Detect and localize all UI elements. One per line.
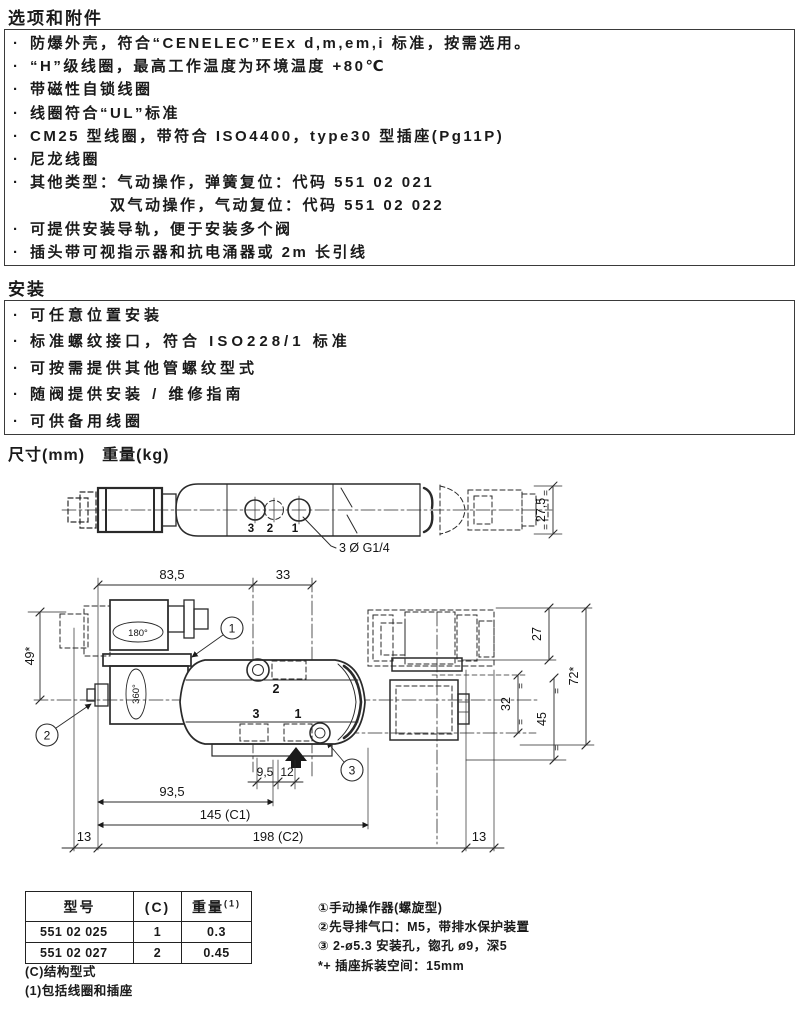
bullet: · bbox=[13, 356, 30, 382]
bullet: · bbox=[13, 409, 30, 435]
port-label-2: 2 bbox=[267, 523, 273, 535]
datasheet-page: 选项和附件 ·防爆外壳，符合“CENELEC”EEx d,m,em,i 标准，按… bbox=[0, 0, 800, 1015]
bullet: · bbox=[13, 125, 30, 148]
list-item: ·“H”级线圈，最高工作温度为环境温度 +80℃ bbox=[13, 55, 786, 78]
side-view: 83,5 33 49* bbox=[23, 567, 594, 852]
header-weight: 重量(1) bbox=[182, 892, 252, 922]
list-item: ·CM25 型线圈，带符合 ISO4400，type30 型插座(Pg11P) bbox=[13, 125, 786, 148]
list-item-text: 可任意位置安装 bbox=[30, 303, 163, 329]
list-item: ·可任意位置安装 bbox=[13, 303, 786, 329]
callout-1: 1 bbox=[192, 617, 243, 657]
body-port-3: 3 bbox=[253, 707, 260, 721]
bullet: · bbox=[13, 102, 30, 125]
svg-text:=: = bbox=[541, 490, 552, 496]
list-item: ·可按需提供其他管螺纹型式 bbox=[13, 356, 786, 382]
svg-text:27: 27 bbox=[530, 627, 544, 641]
port-label-3: 3 bbox=[248, 523, 254, 535]
list-item-text: 插头带可视指示器和抗电涌器或 2m 长引线 bbox=[30, 241, 368, 264]
list-item: ·尼龙线圈 bbox=[13, 148, 786, 171]
list-item-text: 防爆外壳，符合“CENELEC”EEx d,m,em,i 标准，按需选用。 bbox=[30, 32, 532, 55]
cell-weight: 0.45 bbox=[182, 943, 252, 964]
list-item-text: 尼龙线圈 bbox=[30, 148, 100, 171]
model-table: 型号 (C) 重量(1) 551 02 025 1 0.3 551 02 027… bbox=[25, 891, 252, 964]
bullet: · bbox=[13, 78, 30, 101]
svg-text:83,5: 83,5 bbox=[159, 567, 184, 582]
note-line: ③ 2-ø5.3 安装孔，锪孔 ø9，深5 bbox=[318, 937, 529, 956]
installation-box: ·可任意位置安装 ·标准螺纹接口，符合 ISO228/1 标准 ·可按需提供其他… bbox=[4, 300, 795, 435]
margin-left-label: 13 bbox=[77, 829, 91, 844]
cell-weight: 0.3 bbox=[182, 922, 252, 943]
list-item-text: 可供备用线圈 bbox=[30, 409, 144, 435]
bullet: · bbox=[13, 303, 30, 329]
list-item: ·可提供安装导轨，便于安装多个阀 bbox=[13, 218, 786, 241]
weight-footnote-ref: (1) bbox=[224, 898, 241, 908]
list-item-text: CM25 型线圈，带符合 ISO4400，type30 型插座(Pg11P) bbox=[30, 125, 504, 148]
svg-text:=: = bbox=[552, 745, 563, 751]
list-item-text: 带磁性自锁线圈 bbox=[30, 78, 153, 101]
table-footnotes: (C)结构型式 (1)包括线圈和插座 bbox=[25, 963, 133, 1000]
list-item: ·其他类型：气动操作，弹簧复位：代码 551 02 021 bbox=[13, 171, 786, 194]
svg-text:=: = bbox=[516, 683, 527, 689]
table-row: 551 02 025 1 0.3 bbox=[26, 922, 252, 943]
rotation-360-label: 360° bbox=[131, 684, 142, 704]
dim-top: 83,5 33 bbox=[94, 567, 316, 589]
footnote: (C)结构型式 bbox=[25, 963, 133, 982]
note-line: ①手动操作器(螺旋型) bbox=[318, 899, 529, 918]
list-item: ·标准螺纹接口，符合 ISO228/1 标准 bbox=[13, 329, 786, 355]
list-item-text: 双气动操作，气动复位：代码 551 02 022 bbox=[110, 194, 444, 217]
list-item: ·插头带可视指示器和抗电涌器或 2m 长引线 bbox=[13, 241, 786, 264]
body-port-2: 2 bbox=[273, 682, 280, 696]
body-port-1: 1 bbox=[295, 707, 302, 721]
svg-text:49*: 49* bbox=[23, 646, 37, 665]
svg-text:145 (C1): 145 (C1) bbox=[200, 807, 251, 822]
bullet: · bbox=[13, 382, 30, 408]
svg-text:93,5: 93,5 bbox=[159, 784, 184, 799]
svg-text:=: = bbox=[516, 719, 527, 725]
cell-model: 551 02 025 bbox=[26, 922, 134, 943]
rotation-180-label: 180° bbox=[128, 628, 148, 639]
port-label-1: 1 bbox=[292, 523, 299, 535]
svg-text:3: 3 bbox=[349, 764, 356, 778]
bullet: · bbox=[13, 32, 30, 55]
list-item-text: 线圈符合“UL”标准 bbox=[30, 102, 180, 125]
svg-text:33: 33 bbox=[276, 567, 290, 582]
list-item: ·随阀提供安装 / 维修指南 bbox=[13, 382, 786, 408]
margin-right-label: 13 bbox=[472, 829, 486, 844]
bullet: · bbox=[13, 55, 30, 78]
svg-text:1: 1 bbox=[229, 622, 236, 636]
flow-arrow bbox=[285, 747, 307, 761]
list-item-text: 可按需提供其他管螺纹型式 bbox=[30, 356, 258, 382]
header-model: 型号 bbox=[26, 892, 134, 922]
callout-2: 2 bbox=[36, 704, 91, 746]
list-item: ·线圈符合“UL”标准 bbox=[13, 102, 786, 125]
list-item: ·防爆外壳，符合“CENELEC”EEx d,m,em,i 标准，按需选用。 bbox=[13, 32, 786, 55]
list-item-continuation: 双气动操作，气动复位：代码 551 02 022 bbox=[13, 194, 786, 217]
svg-text:9,5: 9,5 bbox=[257, 765, 274, 779]
cell-c: 2 bbox=[134, 943, 182, 964]
list-item-text: 可提供安装导轨，便于安装多个阀 bbox=[30, 218, 293, 241]
note-line: ②先导排气口：M5，带排水保护装置 bbox=[318, 918, 529, 937]
bullet: · bbox=[13, 148, 30, 171]
svg-text:12: 12 bbox=[280, 765, 294, 779]
top-view: 3 2 1 3 Ø G1/4 27,5 bbox=[62, 482, 562, 555]
options-box: ·防爆外壳，符合“CENELEC”EEx d,m,em,i 标准，按需选用。 ·… bbox=[4, 29, 795, 266]
options-title: 选项和附件 bbox=[8, 4, 103, 29]
list-item: ·可供备用线圈 bbox=[13, 409, 786, 435]
svg-text:=: = bbox=[552, 688, 563, 694]
bullet: · bbox=[13, 241, 30, 264]
header-c: (C) bbox=[134, 892, 182, 922]
svg-text:=: = bbox=[541, 524, 552, 530]
list-item: ·带磁性自锁线圈 bbox=[13, 78, 786, 101]
list-item-text: 标准螺纹接口，符合 ISO228/1 标准 bbox=[30, 329, 351, 355]
bullet: · bbox=[13, 171, 30, 194]
technical-drawing: 3 2 1 3 Ø G1/4 27,5 bbox=[0, 460, 800, 892]
bullet: · bbox=[13, 218, 30, 241]
drawing-notes: ①手动操作器(螺旋型) ②先导排气口：M5，带排水保护装置 ③ 2-ø5.3 安… bbox=[318, 899, 529, 976]
note-line: *+ 插座拆装空间：15mm bbox=[318, 957, 529, 976]
port-size-label: 3 Ø G1/4 bbox=[339, 541, 390, 555]
svg-text:72*: 72* bbox=[567, 666, 581, 685]
svg-text:45: 45 bbox=[535, 712, 549, 726]
table-header-row: 型号 (C) 重量(1) bbox=[26, 892, 252, 922]
list-item-text: 其他类型：气动操作，弹簧复位：代码 551 02 021 bbox=[30, 171, 434, 194]
svg-text:2: 2 bbox=[44, 729, 51, 743]
list-item-text: “H”级线圈，最高工作温度为环境温度 +80℃ bbox=[30, 55, 386, 78]
svg-text:198 (C2): 198 (C2) bbox=[253, 829, 304, 844]
table-row: 551 02 027 2 0.45 bbox=[26, 943, 252, 964]
footnote: (1)包括线圈和插座 bbox=[25, 982, 133, 1001]
cell-model: 551 02 027 bbox=[26, 943, 134, 964]
bullet: · bbox=[13, 329, 30, 355]
svg-text:27,5: 27,5 bbox=[534, 498, 548, 522]
svg-text:32: 32 bbox=[499, 697, 513, 711]
list-item-text: 随阀提供安装 / 维修指南 bbox=[30, 382, 245, 408]
cell-c: 1 bbox=[134, 922, 182, 943]
installation-title: 安装 bbox=[8, 275, 46, 300]
valve-body: 2 3 1 bbox=[180, 659, 365, 768]
